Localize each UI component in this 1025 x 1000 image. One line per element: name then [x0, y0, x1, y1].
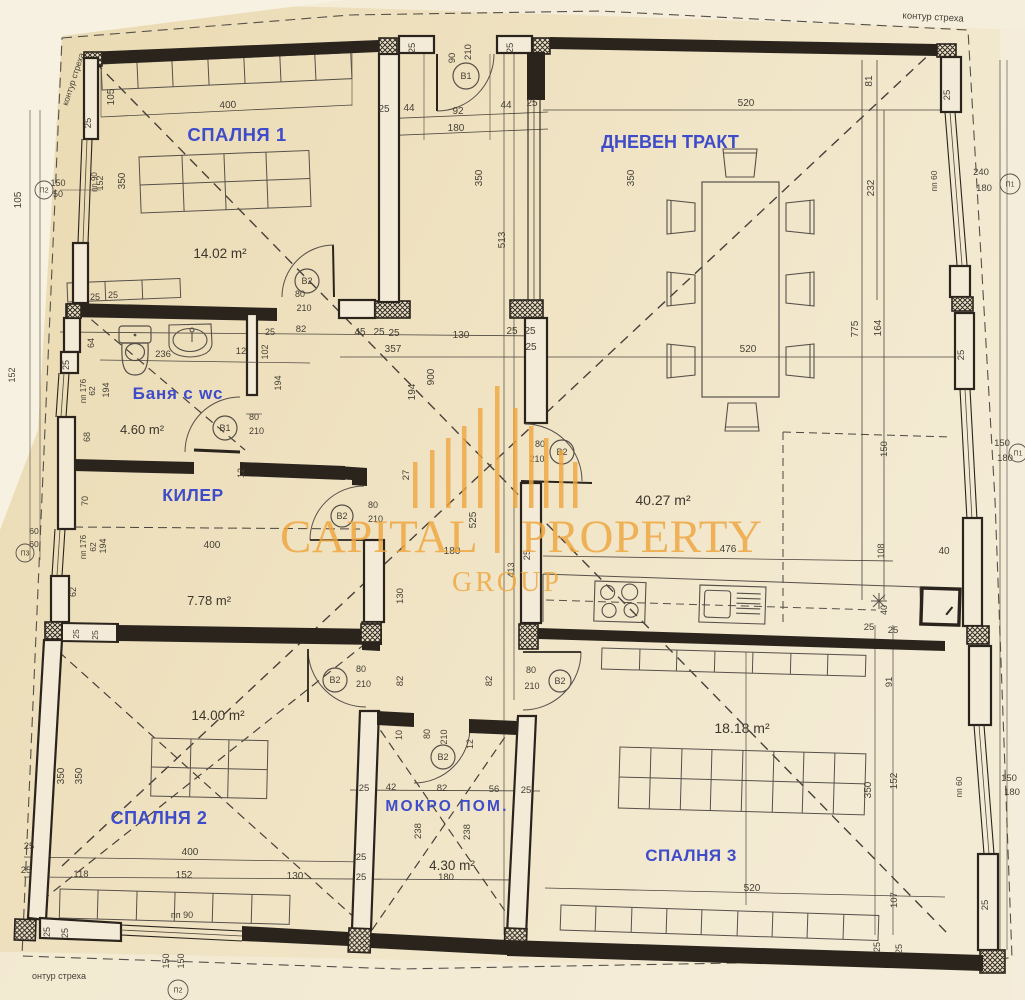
- svg-text:25: 25: [521, 785, 532, 796]
- svg-text:пп 60: пп 60: [929, 170, 939, 191]
- svg-text:50: 50: [53, 189, 63, 199]
- svg-text:П3: П3: [21, 550, 30, 557]
- svg-text:130: 130: [453, 330, 470, 341]
- svg-text:152: 152: [7, 367, 17, 382]
- svg-text:25: 25: [956, 350, 967, 361]
- svg-text:56: 56: [489, 784, 500, 795]
- svg-text:25: 25: [71, 629, 81, 639]
- svg-text:В2: В2: [437, 752, 448, 762]
- svg-text:КИЛЕР: КИЛЕР: [162, 485, 223, 505]
- svg-text:25: 25: [525, 342, 537, 353]
- svg-text:350: 350: [863, 781, 874, 798]
- svg-text:пп 60: пп 60: [954, 776, 964, 797]
- svg-text:350: 350: [626, 169, 637, 186]
- svg-text:В1: В1: [219, 423, 230, 433]
- svg-text:520: 520: [738, 98, 755, 109]
- svg-text:130: 130: [287, 871, 304, 882]
- svg-text:40.27 m²: 40.27 m²: [635, 492, 691, 508]
- svg-text:25: 25: [526, 98, 538, 109]
- svg-text:520: 520: [740, 344, 757, 355]
- svg-text:СПАЛНЯ 3: СПАЛНЯ 3: [645, 846, 737, 865]
- svg-text:105: 105: [13, 191, 24, 208]
- svg-text:90: 90: [447, 53, 458, 64]
- svg-text:180: 180: [448, 123, 465, 134]
- svg-text:68: 68: [82, 432, 92, 442]
- svg-text:25: 25: [894, 944, 904, 954]
- svg-text:80: 80: [535, 439, 545, 449]
- svg-text:80: 80: [368, 500, 378, 510]
- svg-text:150: 150: [176, 953, 186, 968]
- svg-text:81: 81: [864, 75, 875, 87]
- svg-text:В2: В2: [554, 676, 565, 686]
- svg-text:7.78 m²: 7.78 m²: [187, 593, 232, 608]
- svg-text:60: 60: [29, 526, 39, 536]
- svg-text:В2: В2: [301, 276, 312, 286]
- svg-text:775: 775: [850, 320, 861, 337]
- svg-text:70: 70: [80, 496, 90, 506]
- svg-text:25: 25: [356, 872, 367, 883]
- svg-text:350: 350: [56, 767, 67, 784]
- svg-text:CAPITAL: CAPITAL: [280, 511, 478, 563]
- svg-text:152: 152: [95, 175, 105, 190]
- svg-text:45: 45: [354, 327, 366, 338]
- svg-text:П1: П1: [1014, 450, 1023, 457]
- svg-text:МОКРО ПОМ.: МОКРО ПОМ.: [385, 798, 508, 815]
- svg-text:64: 64: [86, 338, 96, 348]
- svg-text:25: 25: [942, 90, 953, 101]
- svg-text:513: 513: [497, 231, 508, 248]
- svg-text:194: 194: [101, 382, 111, 397]
- svg-text:25: 25: [21, 865, 32, 876]
- svg-text:102: 102: [260, 344, 270, 359]
- svg-text:80: 80: [422, 729, 432, 739]
- svg-text:92: 92: [452, 106, 464, 117]
- svg-text:80: 80: [295, 289, 305, 299]
- svg-text:82: 82: [296, 324, 307, 335]
- svg-text:25: 25: [980, 900, 991, 911]
- svg-text:520: 520: [744, 883, 761, 894]
- svg-text:350: 350: [117, 172, 128, 189]
- svg-text:105: 105: [106, 88, 117, 105]
- svg-text:18.18 m²: 18.18 m²: [714, 720, 770, 736]
- svg-text:П2: П2: [174, 987, 183, 994]
- svg-text:СПАЛНЯ 1: СПАЛНЯ 1: [187, 124, 286, 145]
- svg-text:П2: П2: [40, 187, 49, 194]
- svg-text:180: 180: [976, 183, 992, 194]
- svg-text:25: 25: [61, 360, 71, 370]
- svg-text:238: 238: [462, 824, 473, 840]
- svg-text:42: 42: [386, 782, 397, 793]
- svg-text:10: 10: [394, 730, 404, 740]
- svg-text:25: 25: [506, 326, 518, 337]
- svg-text:62: 62: [68, 587, 78, 597]
- svg-text:25: 25: [60, 928, 70, 938]
- svg-text:194: 194: [98, 538, 108, 553]
- svg-text:62: 62: [87, 386, 97, 396]
- svg-text:130: 130: [395, 588, 406, 604]
- svg-text:240: 240: [973, 167, 989, 178]
- svg-text:238: 238: [413, 823, 424, 839]
- svg-text:400: 400: [182, 847, 199, 858]
- svg-text:350: 350: [74, 767, 85, 784]
- svg-text:25: 25: [888, 625, 899, 636]
- svg-text:40: 40: [879, 605, 889, 615]
- svg-text:GROUP: GROUP: [452, 567, 562, 598]
- svg-text:25: 25: [83, 118, 94, 129]
- svg-text:В2: В2: [329, 675, 340, 685]
- svg-text:ДНЕВЕН ТРАКТ: ДНЕВЕН ТРАКТ: [601, 132, 739, 152]
- svg-text:27: 27: [401, 470, 412, 481]
- svg-text:25: 25: [378, 104, 390, 115]
- svg-text:150: 150: [879, 441, 890, 457]
- svg-text:80: 80: [526, 665, 536, 675]
- svg-text:107: 107: [889, 892, 900, 908]
- svg-text:25: 25: [524, 326, 536, 337]
- svg-text:194: 194: [273, 375, 283, 390]
- svg-text:СПАЛНЯ 2: СПАЛНЯ 2: [111, 808, 208, 828]
- svg-text:25: 25: [407, 43, 418, 54]
- svg-text:82: 82: [395, 676, 406, 687]
- svg-text:152: 152: [176, 870, 193, 881]
- svg-text:25: 25: [864, 622, 875, 633]
- svg-text:25: 25: [359, 783, 370, 794]
- svg-text:14.00 m²: 14.00 m²: [191, 708, 245, 723]
- svg-text:400: 400: [204, 540, 221, 551]
- svg-text:150: 150: [1001, 773, 1017, 784]
- svg-text:25: 25: [373, 327, 385, 338]
- svg-text:232: 232: [866, 179, 877, 196]
- svg-text:180: 180: [438, 872, 454, 883]
- svg-text:П1: П1: [1006, 181, 1015, 188]
- svg-text:152: 152: [889, 772, 900, 789]
- svg-text:91: 91: [884, 677, 895, 688]
- svg-text:44: 44: [500, 100, 512, 111]
- svg-text:350: 350: [474, 169, 485, 186]
- svg-text:80: 80: [249, 412, 259, 422]
- svg-text:12: 12: [236, 346, 247, 357]
- svg-text:210: 210: [463, 44, 474, 60]
- svg-text:12: 12: [465, 739, 475, 749]
- svg-text:4.60 m²: 4.60 m²: [120, 422, 165, 437]
- svg-text:пп 176: пп 176: [79, 534, 88, 559]
- svg-text:194: 194: [407, 383, 418, 400]
- svg-text:400: 400: [219, 100, 237, 112]
- svg-text:210: 210: [524, 681, 539, 691]
- svg-text:25: 25: [265, 327, 275, 337]
- svg-text:4.30 m²: 4.30 m²: [429, 858, 475, 873]
- svg-text:210: 210: [356, 679, 371, 689]
- svg-text:25: 25: [90, 292, 100, 302]
- svg-text:PROPERTY: PROPERTY: [521, 511, 762, 563]
- svg-text:пп 90: пп 90: [171, 910, 193, 920]
- svg-text:25: 25: [388, 328, 400, 339]
- svg-text:210: 210: [249, 426, 264, 436]
- svg-text:онтур стреха: онтур стреха: [32, 971, 86, 981]
- svg-text:12: 12: [236, 468, 246, 478]
- svg-text:44: 44: [403, 103, 415, 114]
- svg-text:210: 210: [439, 729, 449, 744]
- svg-text:82: 82: [484, 676, 495, 687]
- svg-text:118: 118: [73, 869, 88, 880]
- svg-text:150: 150: [161, 953, 171, 968]
- svg-text:80: 80: [356, 664, 366, 674]
- svg-text:14.02 m²: 14.02 m²: [193, 246, 247, 261]
- svg-text:164: 164: [873, 319, 884, 336]
- svg-text:25: 25: [42, 927, 52, 937]
- svg-text:900: 900: [426, 368, 437, 385]
- svg-text:25: 25: [90, 630, 100, 640]
- svg-text:25: 25: [505, 43, 516, 54]
- svg-text:108: 108: [876, 543, 886, 558]
- svg-text:150: 150: [994, 438, 1010, 449]
- svg-text:В1: В1: [460, 71, 471, 81]
- svg-text:236: 236: [155, 349, 171, 360]
- svg-text:62: 62: [88, 542, 98, 552]
- svg-text:82: 82: [437, 783, 448, 794]
- svg-text:60: 60: [29, 539, 39, 549]
- svg-text:180: 180: [1004, 787, 1020, 798]
- svg-text:25: 25: [108, 290, 118, 300]
- svg-text:357: 357: [385, 344, 402, 355]
- svg-text:Баня с wc: Баня с wc: [133, 384, 224, 403]
- svg-text:40: 40: [938, 546, 950, 557]
- svg-text:210: 210: [296, 303, 311, 313]
- svg-text:25: 25: [872, 942, 882, 952]
- svg-text:25: 25: [24, 841, 35, 852]
- svg-text:25: 25: [356, 852, 367, 863]
